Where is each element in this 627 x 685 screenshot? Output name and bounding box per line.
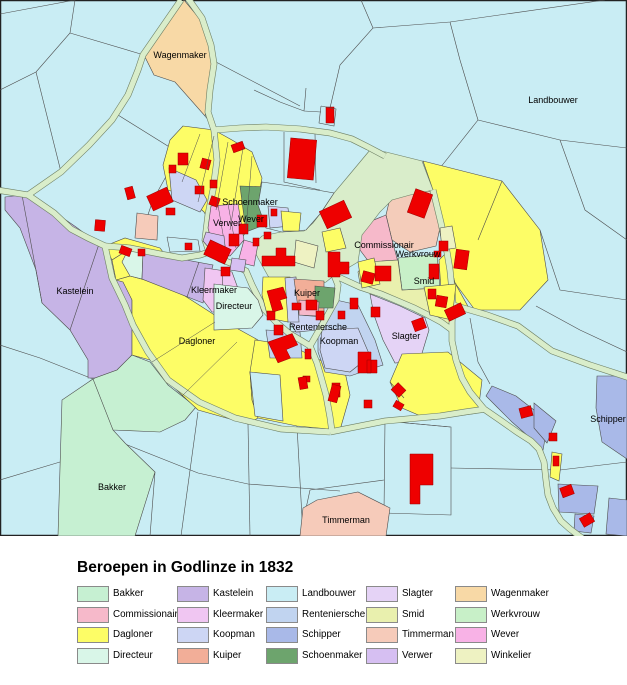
svg-text:Timmerman: Timmerman [322, 515, 370, 525]
svg-text:Smid: Smid [414, 276, 435, 286]
svg-text:Landbouwer: Landbouwer [528, 95, 578, 105]
svg-text:Bakker: Bakker [98, 482, 126, 492]
svg-text:Slagter: Slagter [392, 331, 421, 341]
svg-text:Kastelein: Kastelein [56, 286, 93, 296]
svg-text:Wagenmaker: Wagenmaker [153, 50, 206, 60]
svg-text:Directeur: Directeur [216, 301, 253, 311]
svg-text:Verwer: Verwer [213, 218, 241, 228]
svg-text:Renteniersche: Renteniersche [289, 322, 347, 332]
svg-text:Kuiper: Kuiper [294, 288, 320, 298]
svg-text:Werkvrouw: Werkvrouw [396, 249, 441, 259]
svg-text:Dagloner: Dagloner [179, 336, 216, 346]
svg-text:Wever: Wever [238, 214, 264, 224]
svg-text:Schoenmaker: Schoenmaker [222, 197, 278, 207]
svg-text:Kleermaker: Kleermaker [191, 285, 237, 295]
svg-text:Schipper: Schipper [590, 414, 626, 424]
svg-text:Koopman: Koopman [320, 336, 359, 346]
